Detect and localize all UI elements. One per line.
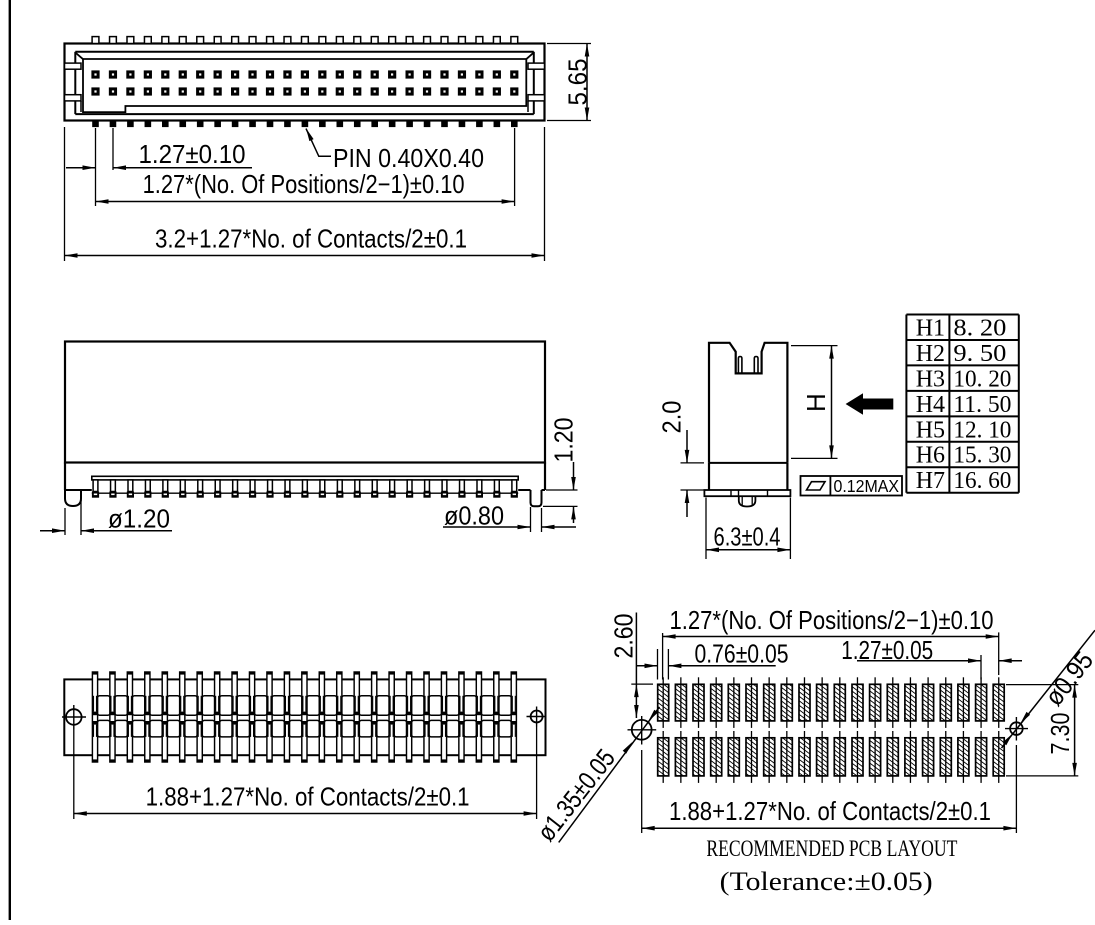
svg-text:1.88+1.27*No. of Contacts/2±0.: 1.88+1.27*No. of Contacts/2±0.1 bbox=[669, 796, 991, 826]
svg-text:H3: H3 bbox=[916, 366, 945, 392]
svg-text:7.30: 7.30 bbox=[1045, 713, 1075, 755]
svg-text:H2: H2 bbox=[916, 341, 945, 367]
svg-text:2.0: 2.0 bbox=[657, 401, 687, 434]
svg-text:9. 50: 9. 50 bbox=[953, 341, 1006, 367]
svg-text:H7: H7 bbox=[916, 468, 945, 494]
svg-text:H4: H4 bbox=[916, 392, 945, 418]
svg-text:8. 20: 8. 20 bbox=[953, 315, 1006, 341]
svg-text:ø0.80: ø0.80 bbox=[444, 501, 504, 531]
svg-text:1.27*(No. Of Positions/2−1)±0.: 1.27*(No. Of Positions/2−1)±0.10 bbox=[670, 605, 994, 635]
svg-text:H5: H5 bbox=[916, 417, 945, 443]
svg-text:11. 50: 11. 50 bbox=[953, 392, 1011, 418]
svg-text:H6: H6 bbox=[916, 443, 945, 469]
svg-text:16. 60: 16. 60 bbox=[953, 468, 1011, 494]
svg-text:ø1.20: ø1.20 bbox=[108, 504, 170, 534]
svg-text:1.27±0.10: 1.27±0.10 bbox=[139, 139, 246, 169]
svg-text:(Tolerance:±0.05): (Tolerance:±0.05) bbox=[720, 866, 933, 896]
svg-text:5.65: 5.65 bbox=[563, 59, 593, 106]
svg-text:10. 20: 10. 20 bbox=[953, 366, 1011, 392]
svg-text:1.88+1.27*No. of Contacts/2±0.: 1.88+1.27*No. of Contacts/2±0.1 bbox=[146, 782, 470, 812]
svg-text:0.12MAX: 0.12MAX bbox=[834, 476, 900, 496]
svg-text:1.27*(No. Of Positions/2−1)±0.: 1.27*(No. Of Positions/2−1)±0.10 bbox=[143, 169, 465, 199]
svg-text:H1: H1 bbox=[916, 315, 945, 341]
svg-text:2.60: 2.60 bbox=[608, 614, 638, 659]
svg-text:RECOMMENDED PCB LAYOUT: RECOMMENDED PCB LAYOUT bbox=[706, 836, 957, 862]
svg-text:12. 10: 12. 10 bbox=[953, 417, 1011, 443]
svg-text:1.27±0.05: 1.27±0.05 bbox=[841, 635, 933, 665]
svg-text:H: H bbox=[801, 393, 831, 412]
svg-text:6.3±0.4: 6.3±0.4 bbox=[714, 522, 781, 552]
svg-text:3.2+1.27*No. of Contacts/2±0.1: 3.2+1.27*No. of Contacts/2±0.1 bbox=[155, 224, 467, 254]
svg-text:0.76±0.05: 0.76±0.05 bbox=[695, 639, 789, 669]
svg-text:1.20: 1.20 bbox=[549, 418, 579, 463]
svg-text:15. 30: 15. 30 bbox=[953, 443, 1011, 469]
